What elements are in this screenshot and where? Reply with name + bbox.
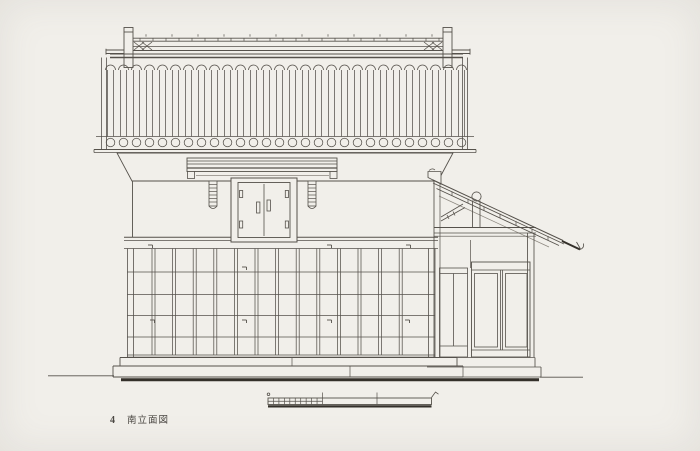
wall-vertical-battens [152,249,402,356]
window-hood [187,158,337,179]
ridge-top-dashes [146,34,432,36]
scale-zero-mark [267,393,270,396]
scanned-drawing-page: 4 南立面図 [0,0,700,451]
roof-wall-flashing [428,169,441,184]
ground-line [48,376,583,380]
lower-batten-wall [124,237,438,357]
elevation-drawing: 4 南立面図 [0,0,700,451]
ridge-end-post-right [443,28,452,68]
roof-field [94,58,476,153]
ridge-cross-decoration-right [424,42,442,50]
figure-number: 4 [110,415,115,426]
lean-to [427,169,584,377]
wall-hook-hardware [148,245,411,323]
scale-divisions [268,393,377,405]
foundation [113,358,463,378]
figure-caption: 南立面図 [127,414,169,426]
caption: 4 南立面図 [110,414,169,426]
scale-end-mark [432,392,439,398]
scale-bar [267,392,438,406]
lean-to-foundation [427,358,541,378]
lean-to-narrow-window [440,268,468,357]
kura-window [231,178,297,242]
roof-tile-ribs [106,65,467,147]
lean-to-sliding-doors [472,262,531,357]
ridge-end-tile-left [106,49,124,55]
wall-horizontal-rails [127,272,435,355]
lean-to-roof-slope [433,180,584,250]
ridge-cross-decoration-left [134,42,152,50]
ridge-end-tile-right [452,49,470,55]
ridge-end-post-left [124,28,133,68]
roof-ridge [106,28,470,68]
lean-to-capped-post [472,192,481,228]
